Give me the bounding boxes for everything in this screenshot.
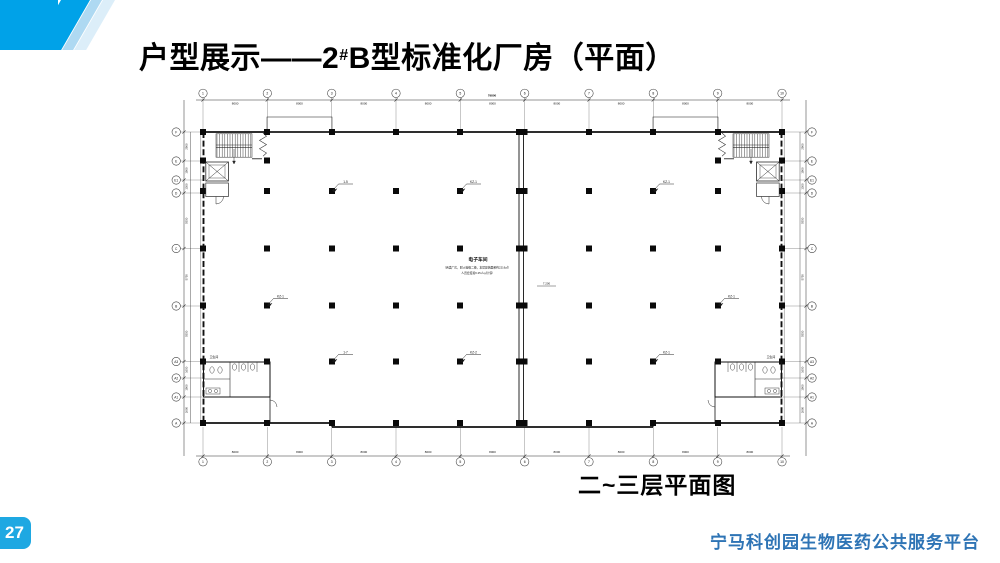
svg-text:10: 10 — [780, 92, 784, 96]
svg-text:1300: 1300 — [185, 183, 189, 190]
axis-bubbles: 1122334455667788991010FFEEE1E1DDCCBBA3A3… — [172, 89, 816, 466]
svg-text:8000: 8000 — [682, 102, 689, 106]
svg-text:5550: 5550 — [185, 330, 189, 337]
svg-text:KZ-1: KZ-1 — [277, 294, 284, 298]
svg-text:8000: 8000 — [232, 450, 239, 454]
slide: 户型展示——2#B型标准化厂房（平面） 80008000800080008000… — [0, 0, 1000, 563]
footer-text: 宁马科创园生物医药公共服务平台 — [710, 528, 980, 553]
svg-text:7: 7 — [588, 460, 590, 464]
svg-text:7: 7 — [588, 92, 590, 96]
svg-text:2: 2 — [266, 460, 268, 464]
stair-elevator-top-left — [206, 133, 267, 204]
svg-text:电子车间: 电子车间 — [468, 256, 487, 263]
svg-text:卫生间: 卫生间 — [767, 354, 776, 359]
svg-text:F: F — [175, 130, 177, 134]
svg-text:卫生间: 卫生间 — [210, 354, 219, 359]
svg-text:8000: 8000 — [425, 450, 432, 454]
svg-text:8000: 8000 — [489, 450, 496, 454]
svg-text:4: 4 — [395, 92, 397, 96]
svg-text:2900: 2900 — [185, 143, 189, 150]
svg-text:5550: 5550 — [800, 217, 804, 224]
svg-text:8000: 8000 — [361, 450, 368, 454]
svg-text:5: 5 — [459, 460, 461, 464]
svg-text:E: E — [811, 159, 813, 163]
svg-text:（丙类厂房，耐火等级二级，本层建筑面积约2216㎡）: （丙类厂房，耐火等级二级，本层建筑面积约2216㎡） — [443, 266, 511, 270]
svg-text:8000: 8000 — [682, 450, 689, 454]
svg-text:1650: 1650 — [800, 366, 804, 373]
svg-text:2600: 2600 — [800, 406, 804, 413]
svg-text:1: 1 — [202, 460, 204, 464]
grid-extension-lines — [180, 98, 807, 458]
svg-text:1: 1 — [202, 92, 204, 96]
structural-columns — [200, 129, 785, 426]
svg-text:8000: 8000 — [618, 450, 625, 454]
svg-text:1900: 1900 — [800, 167, 804, 174]
svg-text:A2: A2 — [174, 376, 178, 380]
svg-text:1650: 1650 — [185, 366, 189, 373]
column-labels: 1-5KZ-1KZ-1KZ-1KZ-11-7KZ-2KZ-1 — [268, 180, 740, 363]
svg-text:E1: E1 — [810, 178, 814, 182]
svg-text:E: E — [175, 159, 177, 163]
svg-text:8000: 8000 — [425, 102, 432, 106]
svg-text:8000: 8000 — [747, 102, 754, 106]
svg-text:7.200: 7.200 — [543, 282, 551, 286]
page-number-badge: 27 — [0, 517, 31, 549]
svg-text:79800: 79800 — [488, 93, 497, 97]
stair-elevator-top-right — [719, 133, 780, 204]
svg-text:F: F — [811, 130, 813, 134]
svg-text:人员密度按0.25人/㎡计算: 人员密度按0.25人/㎡计算 — [461, 271, 493, 275]
svg-text:2900: 2900 — [800, 143, 804, 150]
svg-text:1900: 1900 — [185, 384, 189, 391]
svg-text:A1: A1 — [810, 395, 814, 399]
svg-text:1900: 1900 — [800, 384, 804, 391]
dimension-system: 8000800080008000800080008000800080008000… — [182, 93, 807, 457]
page-number: 27 — [5, 523, 24, 543]
plan-caption: 二~三层平面图 — [578, 466, 736, 500]
svg-text:A3: A3 — [810, 360, 814, 364]
svg-text:10: 10 — [780, 460, 784, 464]
svg-text:5550: 5550 — [800, 330, 804, 337]
svg-text:3: 3 — [331, 92, 333, 96]
svg-text:8000: 8000 — [747, 450, 754, 454]
svg-text:4: 4 — [395, 460, 397, 464]
svg-text:8: 8 — [652, 92, 654, 96]
svg-text:1-7: 1-7 — [343, 350, 348, 354]
svg-text:8000: 8000 — [296, 450, 303, 454]
svg-text:1900: 1900 — [185, 167, 189, 174]
svg-text:8000: 8000 — [296, 102, 303, 106]
svg-text:3: 3 — [331, 460, 333, 464]
svg-text:9: 9 — [717, 92, 719, 96]
svg-text:8000: 8000 — [554, 450, 561, 454]
svg-text:KZ-1: KZ-1 — [663, 180, 670, 184]
svg-text:KZ-1: KZ-1 — [728, 294, 735, 298]
room-annotation: 电子车间（丙类厂房，耐火等级二级，本层建筑面积约2216㎡）人员密度按0.25人… — [443, 256, 556, 286]
svg-text:1300: 1300 — [800, 183, 804, 190]
svg-text:1-5: 1-5 — [343, 180, 348, 184]
svg-text:5: 5 — [459, 92, 461, 96]
svg-text:E1: E1 — [174, 178, 178, 182]
svg-text:A1: A1 — [174, 395, 178, 399]
svg-text:B: B — [175, 304, 177, 308]
svg-text:9: 9 — [717, 460, 719, 464]
svg-text:KZ-1: KZ-1 — [663, 350, 670, 354]
svg-text:2600: 2600 — [185, 406, 189, 413]
svg-text:6: 6 — [524, 92, 526, 96]
svg-text:5750: 5750 — [800, 274, 804, 281]
svg-text:KZ-2: KZ-2 — [470, 350, 477, 354]
svg-text:6: 6 — [524, 460, 526, 464]
svg-text:KZ-1: KZ-1 — [470, 180, 477, 184]
svg-text:8000: 8000 — [554, 102, 561, 106]
svg-text:8: 8 — [652, 460, 654, 464]
svg-text:5550: 5550 — [185, 217, 189, 224]
svg-text:5750: 5750 — [185, 274, 189, 281]
svg-text:A2: A2 — [810, 376, 814, 380]
svg-text:2: 2 — [266, 92, 268, 96]
svg-text:8000: 8000 — [489, 102, 496, 106]
svg-text:8000: 8000 — [618, 102, 625, 106]
svg-text:A3: A3 — [174, 360, 178, 364]
svg-text:8000: 8000 — [361, 102, 368, 106]
svg-text:8000: 8000 — [232, 102, 239, 106]
floor-plan-drawing: 8000800080008000800080008000800080008000… — [0, 0, 1000, 563]
svg-text:B: B — [811, 304, 813, 308]
